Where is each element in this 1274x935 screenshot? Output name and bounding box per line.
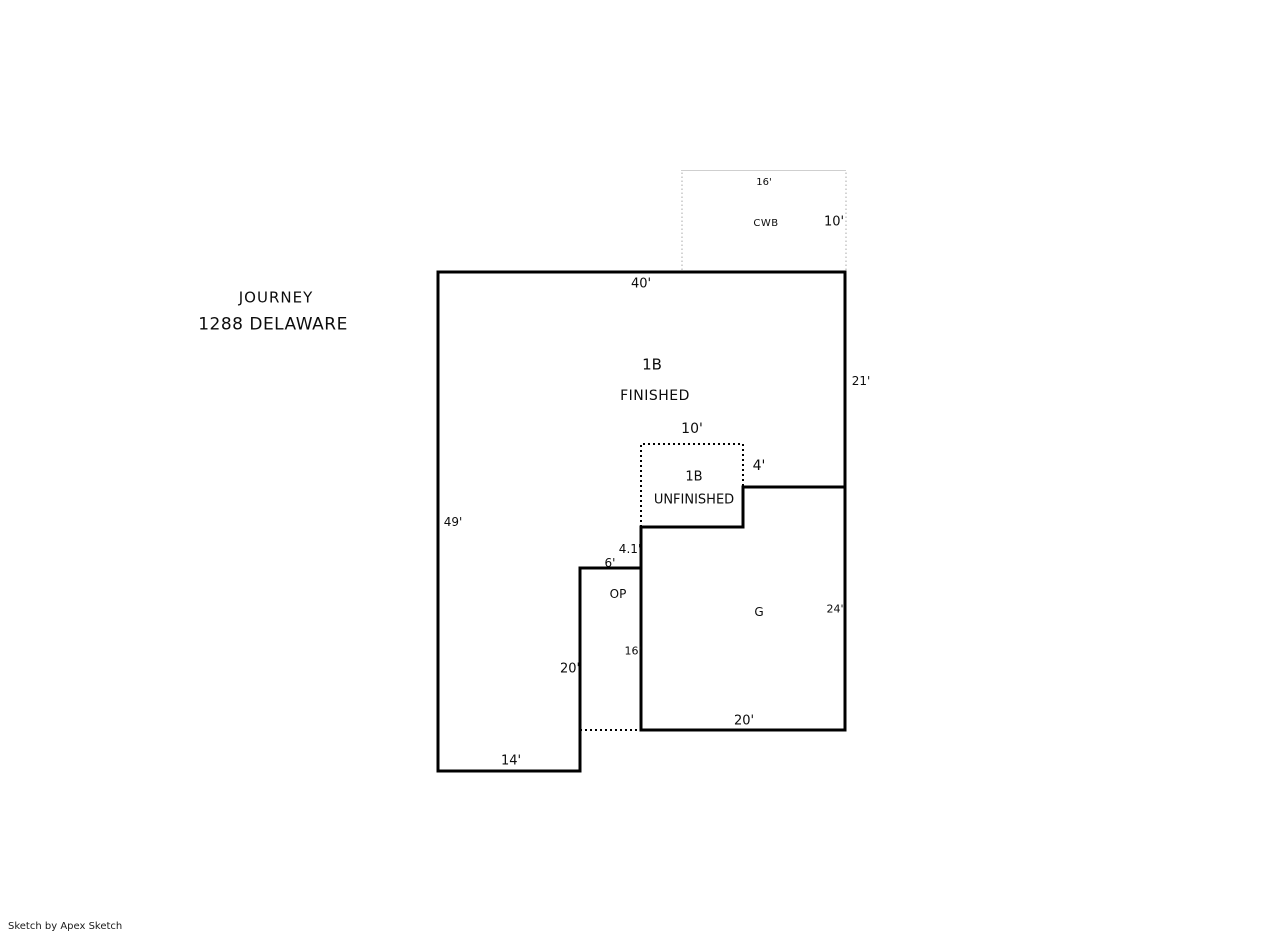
dim-unfinished-right: 4'	[753, 459, 766, 473]
project-name: JOURNEY	[239, 291, 314, 306]
area-label-cwb: CWB	[753, 219, 778, 229]
dim-finished-right: 21'	[852, 375, 871, 387]
dim-finished-left: 49'	[444, 516, 463, 528]
dim-cwb-top: 16'	[756, 178, 771, 188]
floorplan-drawing	[0, 0, 1274, 935]
dim-garage-right: 24'	[826, 604, 843, 615]
area-label-finished-code: 1B	[642, 358, 662, 373]
address: 1288 DELAWARE	[198, 317, 348, 334]
garage-outline	[641, 487, 845, 730]
dim-finished-bottom: 14'	[501, 755, 521, 768]
area-label-finished-status: FINISHED	[620, 389, 690, 403]
dim-garage-bottom: 20'	[734, 715, 754, 728]
unfinished-area-outline	[641, 444, 743, 527]
area-label-unfinished-status: UNFINISHED	[654, 494, 734, 507]
floorplan-canvas: JOURNEY 1288 DELAWARE 16' CWB 10' 40' 21…	[0, 0, 1274, 935]
area-label-porch: OP	[610, 588, 627, 600]
dim-porch-top: 6'	[605, 557, 616, 569]
dim-cwb-right: 10'	[824, 216, 844, 229]
dim-finished-top: 40'	[631, 278, 651, 291]
dim-unfinished-top: 10'	[681, 422, 703, 436]
dim-porch-left: 20'	[560, 663, 580, 676]
dim-porch-step: 4.1'	[619, 543, 641, 555]
watermark: Sketch by Apex Sketch	[8, 921, 122, 932]
area-label-garage: G	[754, 606, 763, 618]
dim-porch-right: 16'	[624, 646, 641, 657]
area-label-unfinished-code: 1B	[685, 471, 702, 484]
